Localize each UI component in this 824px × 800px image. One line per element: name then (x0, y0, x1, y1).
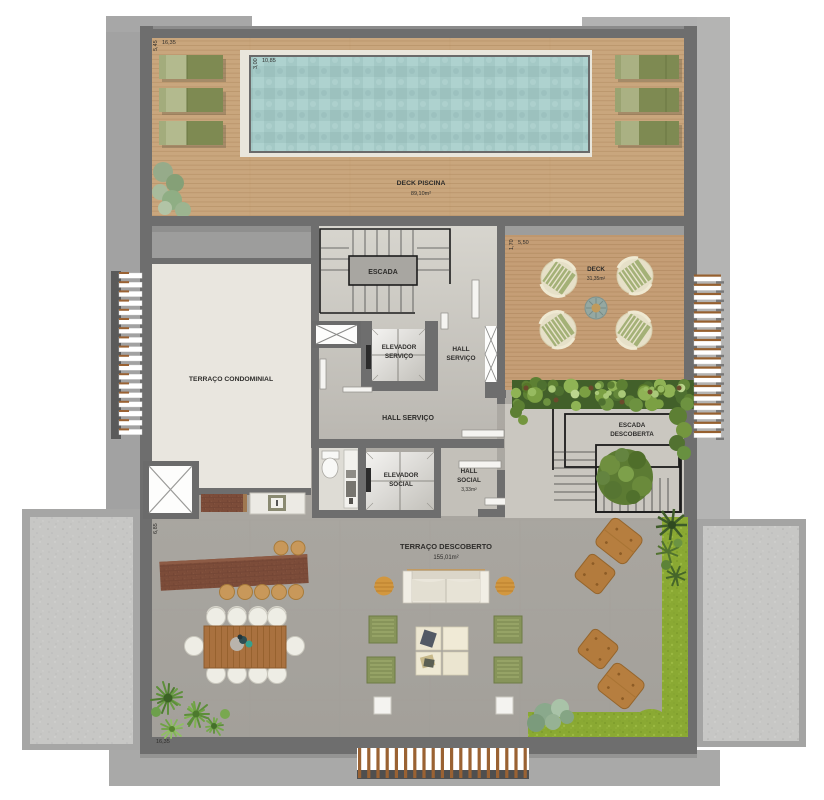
svg-text:SOCIAL: SOCIAL (389, 481, 413, 488)
svg-text:SERVIÇO: SERVIÇO (446, 355, 475, 362)
svg-text:89,10m²: 89,10m² (411, 191, 431, 197)
svg-text:155,01m²: 155,01m² (433, 555, 458, 561)
svg-text:3,00: 3,00 (253, 58, 259, 69)
svg-text:SERVIÇO: SERVIÇO (385, 353, 413, 360)
svg-text:3,33m²: 3,33m² (461, 487, 477, 493)
svg-text:HALL: HALL (461, 468, 478, 475)
svg-text:DESCOBERTA: DESCOBERTA (610, 431, 654, 438)
svg-text:ESCADA: ESCADA (619, 422, 646, 429)
svg-text:DECK: DECK (587, 266, 605, 273)
svg-text:10,85: 10,85 (262, 58, 276, 64)
svg-text:ELEVADOR: ELEVADOR (382, 344, 417, 351)
svg-text:ELEVADOR: ELEVADOR (384, 472, 419, 479)
svg-text:5,45: 5,45 (153, 40, 159, 51)
svg-text:6,85: 6,85 (153, 523, 159, 534)
svg-text:HALL SERVIÇO: HALL SERVIÇO (382, 415, 434, 422)
svg-text:TERRAÇO DESCOBERTO: TERRAÇO DESCOBERTO (400, 542, 492, 551)
svg-text:ESCADA: ESCADA (368, 269, 398, 276)
svg-text:5,50: 5,50 (518, 240, 529, 246)
svg-text:DECK PISCINA: DECK PISCINA (397, 180, 446, 187)
svg-text:HALL: HALL (452, 346, 469, 353)
svg-text:SOCIAL: SOCIAL (457, 477, 481, 484)
svg-text:16,35: 16,35 (162, 40, 176, 46)
svg-text:TERRAÇO CONDOMINIAL: TERRAÇO CONDOMINIAL (189, 376, 273, 383)
svg-text:16,35: 16,35 (156, 739, 170, 745)
svg-text:31,35m²: 31,35m² (587, 276, 606, 282)
svg-text:1,70: 1,70 (509, 239, 515, 250)
